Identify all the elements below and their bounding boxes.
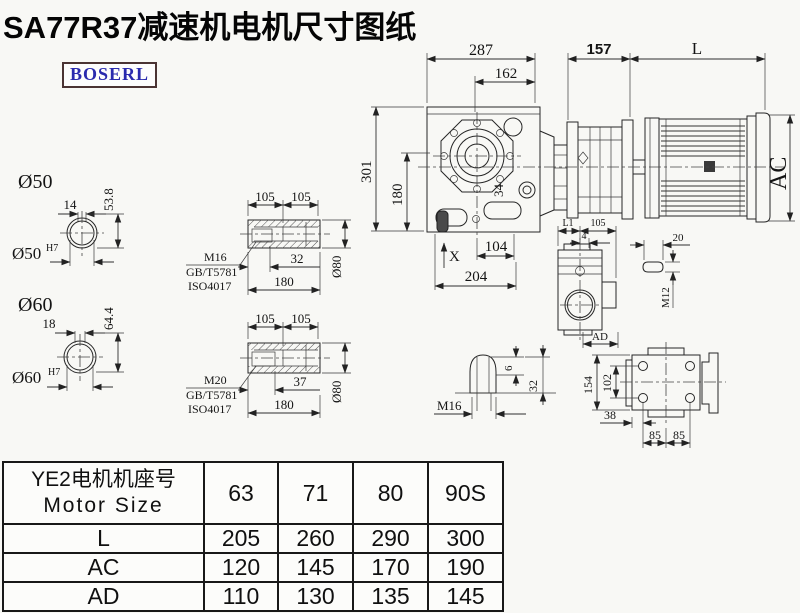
back-dim-85a: 85 bbox=[649, 428, 661, 442]
bore50-height: 53.8 bbox=[101, 188, 116, 211]
AC-71: 145 bbox=[278, 553, 353, 582]
bore50-fit: Ø50 bbox=[12, 244, 41, 263]
bore60-view: Ø60 18 64.4 Ø60 H7 bbox=[12, 294, 124, 391]
sleeve2-dim-105b: 105 bbox=[291, 311, 311, 326]
back-dim-38: 38 bbox=[604, 408, 616, 422]
L-80: 290 bbox=[353, 524, 428, 553]
main-view-dimensions: 287 162 157 L AC 301 180 34 X 104 bbox=[359, 39, 795, 290]
sleeve2-dia: Ø80 bbox=[329, 381, 344, 403]
dim-104: 104 bbox=[485, 239, 508, 255]
dim-L: L bbox=[692, 39, 702, 58]
table-row-L: L 205 260 290 300 bbox=[3, 524, 503, 553]
plug-thread: M16 bbox=[437, 398, 462, 413]
back-dim-102: 102 bbox=[600, 374, 614, 392]
L-90S: 300 bbox=[428, 524, 503, 553]
bore50-view: Ø50 14 53.8 Ø50 H7 bbox=[12, 171, 124, 266]
sleeve1-dim-105b: 105 bbox=[291, 189, 311, 204]
table-row-AC: AC 120 145 170 190 bbox=[3, 553, 503, 582]
row-label-AD: AD bbox=[3, 582, 204, 611]
sleeve1-std2: ISO4017 bbox=[188, 279, 231, 293]
bore60-title: Ø60 bbox=[18, 294, 52, 316]
AC-90S: 190 bbox=[428, 553, 503, 582]
AD-63: 110 bbox=[204, 582, 278, 611]
AD-90S: 145 bbox=[428, 582, 503, 611]
sleeve1-thread: M16 bbox=[204, 250, 227, 264]
AC-80: 170 bbox=[353, 553, 428, 582]
bore50-title: Ø50 bbox=[18, 171, 52, 193]
AD-80: 135 bbox=[353, 582, 428, 611]
sleeve1-dim-105a: 105 bbox=[255, 189, 275, 204]
back-dim-154: 154 bbox=[581, 376, 595, 394]
motor-size-71: 71 bbox=[278, 462, 353, 524]
row-label-L: L bbox=[3, 524, 204, 553]
side-dim-105: 105 bbox=[591, 218, 606, 229]
side-dim-AD: AD bbox=[592, 331, 608, 343]
side-dim-L1: L1 bbox=[562, 218, 573, 229]
table-header-motor-size: YE2电机机座号 Motor Size bbox=[3, 462, 204, 524]
bore50-key-width: 14 bbox=[64, 197, 78, 212]
plug-dim-32: 32 bbox=[526, 380, 540, 392]
side-thread-M12: M12 bbox=[660, 287, 672, 308]
dim-X: X bbox=[449, 249, 460, 265]
back-dim-85b: 85 bbox=[673, 428, 685, 442]
bore60-fit: Ø60 bbox=[12, 368, 41, 387]
AD-71: 130 bbox=[278, 582, 353, 611]
sleeve2-std2: ISO4017 bbox=[188, 402, 231, 416]
motor-size-80: 80 bbox=[353, 462, 428, 524]
L-63: 205 bbox=[204, 524, 278, 553]
sleeve1-depth: 32 bbox=[291, 251, 304, 266]
sleeve2-length: 180 bbox=[274, 397, 294, 412]
main-view-gearbox bbox=[427, 107, 554, 236]
dim-157: 157 bbox=[586, 41, 611, 58]
sleeve1-view: 105 105 M16 GB/T5781 ISO4017 32 180 Ø80 bbox=[186, 189, 351, 295]
sleeve1-std1: GB/T5781 bbox=[186, 265, 237, 279]
bore60-fit-sup: H7 bbox=[48, 367, 60, 378]
bore50-fit-sup: H7 bbox=[46, 243, 58, 254]
side-view: L1 105 4 AD 20 M12 bbox=[558, 218, 690, 348]
motor-size-90S: 90S bbox=[428, 462, 503, 524]
dim-301: 301 bbox=[359, 161, 375, 184]
dim-34: 34 bbox=[491, 184, 506, 198]
main-view-adapter bbox=[554, 120, 645, 219]
bore60-key-width: 18 bbox=[43, 316, 56, 331]
plug-view: 6 32 M16 bbox=[434, 345, 556, 419]
table-row-AD: AD 110 130 135 145 bbox=[3, 582, 503, 611]
L-71: 260 bbox=[278, 524, 353, 553]
dim-204: 204 bbox=[465, 269, 488, 285]
row-label-AC: AC bbox=[3, 553, 204, 582]
sleeve2-std1: GB/T5781 bbox=[186, 388, 237, 402]
sleeve1-dia: Ø80 bbox=[329, 256, 344, 278]
side-dim-4: 4 bbox=[582, 231, 587, 242]
sleeve2-view: 105 105 M20 GB/T5781 ISO4017 37 180 Ø80 bbox=[186, 311, 351, 418]
sleeve2-depth: 37 bbox=[294, 374, 308, 389]
dim-162: 162 bbox=[495, 66, 518, 82]
sleeve1-length: 180 bbox=[274, 274, 294, 289]
sleeve2-dim-105a: 105 bbox=[255, 311, 275, 326]
motor-size-63: 63 bbox=[204, 462, 278, 524]
back-view: 154 102 38 85 85 bbox=[581, 342, 726, 448]
bore60-height: 64.4 bbox=[101, 307, 116, 330]
plug-dim-6: 6 bbox=[503, 365, 515, 371]
side-dim-20: 20 bbox=[673, 232, 685, 244]
table-header-cn: YE2电机机座号 bbox=[4, 467, 203, 493]
AC-63: 120 bbox=[204, 553, 278, 582]
technical-drawing: 287 162 157 L AC 301 180 34 X 104 bbox=[0, 0, 800, 460]
dim-287: 287 bbox=[469, 42, 493, 59]
dim-180: 180 bbox=[390, 184, 406, 207]
sleeve2-thread: M20 bbox=[204, 373, 227, 387]
drawing-sheet: SA77R37减速机电机尺寸图纸 BOSERL bbox=[0, 0, 800, 613]
dimension-table: YE2电机机座号 Motor Size 63 71 80 90S L 205 2… bbox=[2, 461, 504, 612]
dim-AC: AC bbox=[766, 157, 792, 190]
table-header-en: Motor Size bbox=[4, 493, 203, 519]
